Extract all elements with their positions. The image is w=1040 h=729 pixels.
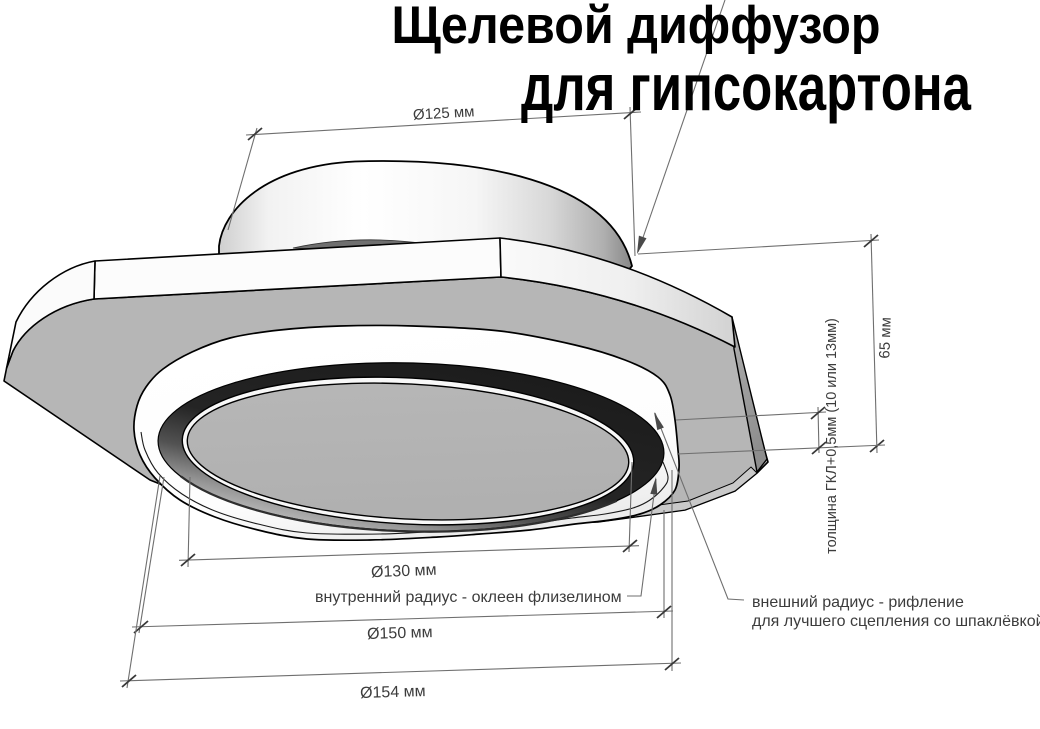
svg-text:65 мм: 65 мм (876, 317, 894, 359)
svg-text:Ø130 мм: Ø130 мм (371, 562, 437, 582)
svg-text:внутренний радиус - оклеен фли: внутренний радиус - оклеен флизелином (315, 589, 622, 606)
svg-text:Ø125 мм: Ø125 мм (413, 103, 475, 124)
svg-text:для лучшего сцепления со шпакл: для лучшего сцепления со шпаклёвкой (752, 613, 1040, 630)
svg-text:толщина ГКЛ+0,5мм (10 или 13мм: толщина ГКЛ+0,5мм (10 или 13мм) (824, 318, 840, 554)
svg-text:Ø150 мм: Ø150 мм (367, 624, 433, 643)
svg-text:Ø154 мм: Ø154 мм (360, 683, 426, 702)
svg-text:для гипсокартона: для гипсокартона (521, 50, 972, 124)
svg-text:внешний радиус - рифление: внешний радиус - рифление (752, 594, 964, 611)
svg-text:Щелевой диффузор: Щелевой диффузор (392, 0, 881, 55)
